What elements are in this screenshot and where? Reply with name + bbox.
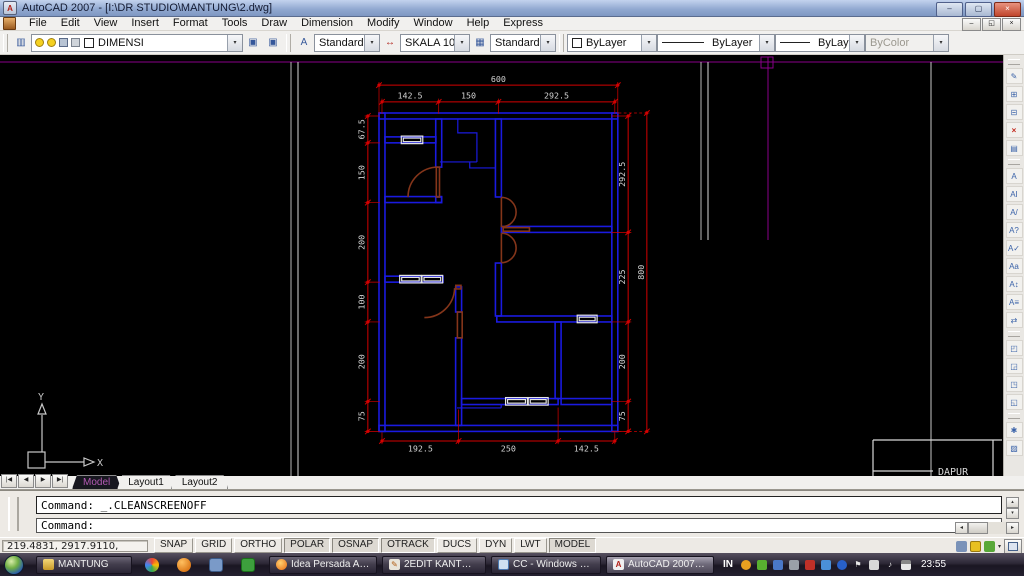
single-line-text-icon[interactable]: AI [1006,186,1023,202]
menu-tools[interactable]: Tools [215,17,255,30]
linetype-sample [662,42,704,43]
lineweight-sample [780,42,810,43]
plot-style-value: ByColor [866,37,933,49]
toolbar-grip[interactable] [3,34,8,52]
linetype-value: ByLayer [708,37,759,49]
folder-icon [43,559,54,570]
menu-express[interactable]: Express [496,17,550,30]
find-and-replace-icon[interactable]: A? [1006,222,1023,238]
menu-edit[interactable]: Edit [54,17,87,30]
media-icon[interactable] [741,560,751,570]
lineweight-combo[interactable]: ByLayer ▾ [775,34,865,52]
toolbar-lock-icon[interactable] [970,541,981,552]
menu-window[interactable]: Window [406,17,459,30]
taskbar-item-label: AutoCAD 2007 - [I... [628,559,707,570]
dim-label: 100 [357,295,367,310]
right-dock: ✎⊞⊟×▤AAIA/A?A✓AaA↕A≡⇄◰◲◳◱✱▨ [1003,55,1024,476]
scale-text-icon[interactable]: A↕ [1006,276,1023,292]
render-settings-icon[interactable]: ✱ [1006,422,1023,438]
status-menu-icon[interactable]: ▾ [998,543,1001,550]
toggle-otrack[interactable]: OTRACK [381,538,435,553]
menu-draw[interactable]: Draw [254,17,294,30]
tab-prev-icon[interactable]: ◀ [18,474,34,488]
text-style-icon[interactable]: A [294,33,314,53]
close-button[interactable]: × [994,2,1021,17]
make-layer-current-icon[interactable]: ▣ [243,33,263,53]
tab-layout1[interactable]: Layout1 [117,475,175,489]
scroll-left-icon[interactable]: ◂ [955,522,968,534]
firefox-icon [276,559,287,570]
start-button[interactable] [4,555,24,575]
signal-icon[interactable] [901,560,911,570]
mdi-restore-button[interactable]: ◱ [982,18,1001,31]
window-title: AutoCAD 2007 - [I:\DR STUDIO\MANTUNG\2.d… [22,2,272,14]
toolbar-grip[interactable] [1008,59,1020,65]
dim-label: 200 [357,235,367,250]
plot-style-combo: ByColor ▾ [865,34,949,52]
dim-label: 75 [357,411,367,421]
layer-previous-icon[interactable]: ▣ [263,33,283,53]
text-style-icon[interactable]: Aa [1006,258,1023,274]
toolbar-grip[interactable] [1008,413,1020,419]
dim-style-value: SKALA 100 [401,37,454,49]
scrollbar-thumb[interactable] [968,522,988,534]
layer-lock-icon [59,38,68,47]
dim-label: 150 [461,91,476,101]
layer-thaw-icon [47,38,56,47]
spell-check-icon[interactable]: A✓ [1006,240,1023,256]
lineweight-value: ByLayer [814,37,849,49]
toolbar-grip[interactable] [1008,159,1020,165]
dim-label: 600 [491,74,506,84]
add-objects-to-workset-icon[interactable]: ⊞ [1006,86,1023,102]
bring-above-objects-icon[interactable]: ◳ [1006,376,1023,392]
color-swatch [572,38,582,48]
taskbar-clock[interactable]: 23:55 [921,559,946,570]
text-style-value: Standard [315,37,364,49]
dim-label: 292.5 [544,91,569,101]
send-to-back-icon[interactable]: ◲ [1006,358,1023,374]
table-style-combo[interactable]: Standard ▾ [490,34,556,52]
mdi-close-button[interactable]: × [1002,18,1021,31]
status-bar: 219.4831, 2917.9110, 0.0000 SNAPGRIDORTH… [0,537,1024,553]
command-window-grip[interactable] [8,497,19,531]
menu-bar: FileEditViewInsertFormatToolsDrawDimensi… [0,17,1024,31]
tab-layout2[interactable]: Layout2 [171,475,229,489]
layer-properties-icon[interactable]: ▥ [11,33,31,53]
taskbar-item-label: Idea Persada Arch... [291,559,370,570]
color-value: ByLayer [582,37,641,49]
chevron-down-icon[interactable]: ▾ [454,35,469,51]
communication-center-icon[interactable] [956,541,967,552]
chevron-down-icon: ▾ [933,35,948,51]
edit-reference-icon[interactable]: ✎ [1006,68,1023,84]
dim-label: 800 [636,265,646,280]
bluetooth-icon[interactable] [837,560,847,570]
ucs-icon [28,404,94,468]
scroll-right-icon[interactable]: ▸ [1006,522,1019,534]
app-icon[interactable] [241,558,255,572]
chevron-down-icon[interactable]: ▾ [364,35,379,51]
layout-tab-bar: |◀ ◀ ▶ ▶| Model Layout1 Layout2 [0,476,1024,490]
table-style-icon[interactable]: ▦ [470,33,490,53]
send-under-objects-icon[interactable]: ◱ [1006,394,1023,410]
volume-icon[interactable]: ♪ [885,560,895,570]
chevron-down-icon[interactable]: ▾ [227,35,242,51]
dim-label: 292.5 [617,162,627,187]
room-label: DAPUR [938,467,969,476]
scroll-down-icon[interactable]: ▾ [1006,508,1019,519]
layer-on-icon [35,38,44,47]
remove-from-workset-icon[interactable]: ⊟ [1006,104,1023,120]
save-reference-edits-icon[interactable]: ▤ [1006,140,1023,156]
toggle-osnap[interactable]: OSNAP [332,538,379,553]
windows-taskbar: MANTUNG Idea Persada Arch... ✎ 2EDIT KAN… [0,553,1024,576]
chevron-down-icon[interactable]: ▾ [540,35,555,51]
floor-plan: 600 142.5 150 292.5 192.5 250 142.5 67.5… [357,74,650,453]
menu-format[interactable]: Format [166,17,215,30]
edit-text-icon[interactable]: A/ [1006,204,1023,220]
command-input[interactable]: Command: [36,518,1002,533]
launcher-icon[interactable] [177,558,191,572]
taskbar-item-label: CC - Windows Ph... [513,559,594,570]
taskbar-item-editor[interactable]: ✎ 2EDIT KANTOR - ... [382,556,486,574]
dim-label: 192.5 [408,443,433,453]
toolbar-grip[interactable] [1008,331,1020,337]
toggle-snap[interactable]: SNAP [154,538,193,553]
command-window: Command: _.CLEANSCREENOFF Command: ▴ ▾ ◂… [0,490,1024,537]
toggle-dyn[interactable]: DYN [479,538,512,553]
flag-icon[interactable]: ⚑ [853,560,863,570]
network-icon[interactable] [773,560,783,570]
dim-style-combo[interactable]: SKALA 100 ▾ [400,34,470,52]
command-history[interactable]: Command: _.CLEANSCREENOFF [36,496,1002,514]
close-reference-icon[interactable]: × [1006,122,1023,138]
toggle-lwt[interactable]: LWT [514,538,546,553]
taskbar-item-browser[interactable]: Idea Persada Arch... [269,556,377,574]
ucs-y-label: Y [38,392,44,403]
maximize-button[interactable]: ▢ [965,2,992,17]
toggle-grid[interactable]: GRID [195,538,232,553]
drawing-file-icon[interactable] [3,17,16,30]
dim-label: 200 [617,354,627,369]
standards-check-icon[interactable] [984,541,995,552]
taskbar-item-label: MANTUNG [58,559,109,570]
linetype-combo[interactable]: ByLayer ▾ [657,34,775,52]
java-icon[interactable] [821,560,831,570]
convert-text-icon[interactable]: ⇄ [1006,312,1023,328]
clean-screen-button[interactable] [1004,539,1022,554]
autocad-window: A AutoCAD 2007 - [I:\DR STUDIO\MANTUNG\2… [0,0,1024,576]
pencil-icon: ✎ [389,559,400,570]
dim-label: 225 [617,269,627,284]
menu-view[interactable]: View [87,17,125,30]
layer-plot-icon [71,38,80,47]
table-style-value: Standard [491,37,540,49]
taskbar-item-photo[interactable]: CC - Windows Ph... [491,556,601,574]
door-symbols [408,167,529,338]
mdi-minimize-button[interactable]: ‒ [962,18,981,31]
text-style-combo[interactable]: Standard ▾ [314,34,380,52]
walls [379,113,618,431]
menu-dimension[interactable]: Dimension [294,17,360,30]
toggle-ortho[interactable]: ORTHO [234,538,282,553]
taskbar-item-label: 2EDIT KANTOR - ... [404,559,479,570]
calculator-icon[interactable] [209,558,223,572]
battery-icon[interactable] [869,560,879,570]
title-bar[interactable]: A AutoCAD 2007 - [I:\DR STUDIO\MANTUNG\2… [0,0,1024,17]
layer-name: DIMENSI [94,37,227,49]
partition-walls [440,119,501,408]
multiline-text-icon[interactable]: A [1006,168,1023,184]
menu-file[interactable]: File [22,17,54,30]
color-combo[interactable]: ByLayer ▾ [567,34,657,52]
dim-style-icon[interactable]: ↔ [380,33,400,53]
autocad-app-icon: A [3,1,17,15]
minimize-button[interactable]: ‒ [936,2,963,17]
tab-model[interactable]: Model [72,475,121,489]
autocad-icon: A [613,559,624,570]
taskbar-item-autocad[interactable]: A AutoCAD 2007 - [I... [606,556,714,574]
tab-first-icon[interactable]: |◀ [1,474,17,488]
window-symbols [400,136,597,405]
photo-viewer-icon [498,559,509,570]
toggle-polar[interactable]: POLAR [284,538,330,553]
chevron-down-icon[interactable]: ▾ [849,35,864,51]
drawing-canvas[interactable]: 600 142.5 150 292.5 192.5 250 142.5 67.5… [0,55,1003,476]
layer-combo[interactable]: DIMENSI ▾ [31,34,243,52]
dim-label: 200 [357,354,367,369]
dim-label: 142.5 [397,91,422,101]
dim-label: 250 [501,443,516,453]
menu-insert[interactable]: Insert [124,17,166,30]
menu-help[interactable]: Help [460,17,497,30]
command-hscrollbar[interactable]: ◂ ▸ [955,522,1019,534]
toolbar-grip[interactable] [559,34,564,52]
toggle-ducs[interactable]: DUCS [437,538,477,553]
dim-label: 142.5 [574,443,599,453]
update-icon[interactable] [757,560,767,570]
dim-label: 75 [617,411,627,421]
chevron-down-icon[interactable]: ▾ [759,35,774,51]
hatch-icon[interactable]: ▨ [1006,440,1023,456]
justify-text-icon[interactable]: A≡ [1006,294,1023,310]
properties-toolbar: ▥ DIMENSI ▾ ▣ ▣ A Standard ▾ ↔ SKALA 100… [0,31,1024,55]
chevron-down-icon[interactable]: ▾ [641,35,656,51]
taskbar-item-mantung[interactable]: MANTUNG [36,556,132,574]
coordinate-readout[interactable]: 219.4831, 2917.9110, 0.0000 [2,540,148,552]
chrome-icon[interactable] [145,558,159,572]
ucs-x-label: X [97,458,103,469]
scroll-up-icon[interactable]: ▴ [1006,497,1019,508]
audio-alert-icon[interactable] [805,560,815,570]
language-indicator[interactable]: IN [723,559,733,570]
layer-color-swatch [84,38,94,48]
display-icon[interactable] [789,560,799,570]
menu-modify[interactable]: Modify [360,17,406,30]
toolbar-grip[interactable] [286,34,291,52]
toggle-model[interactable]: MODEL [549,538,597,553]
dim-label: 67.5 [357,119,367,139]
bring-to-front-icon[interactable]: ◰ [1006,340,1023,356]
tab-last-icon[interactable]: ▶| [52,474,68,488]
tab-next-icon[interactable]: ▶ [35,474,51,488]
dim-label: 150 [357,165,367,180]
